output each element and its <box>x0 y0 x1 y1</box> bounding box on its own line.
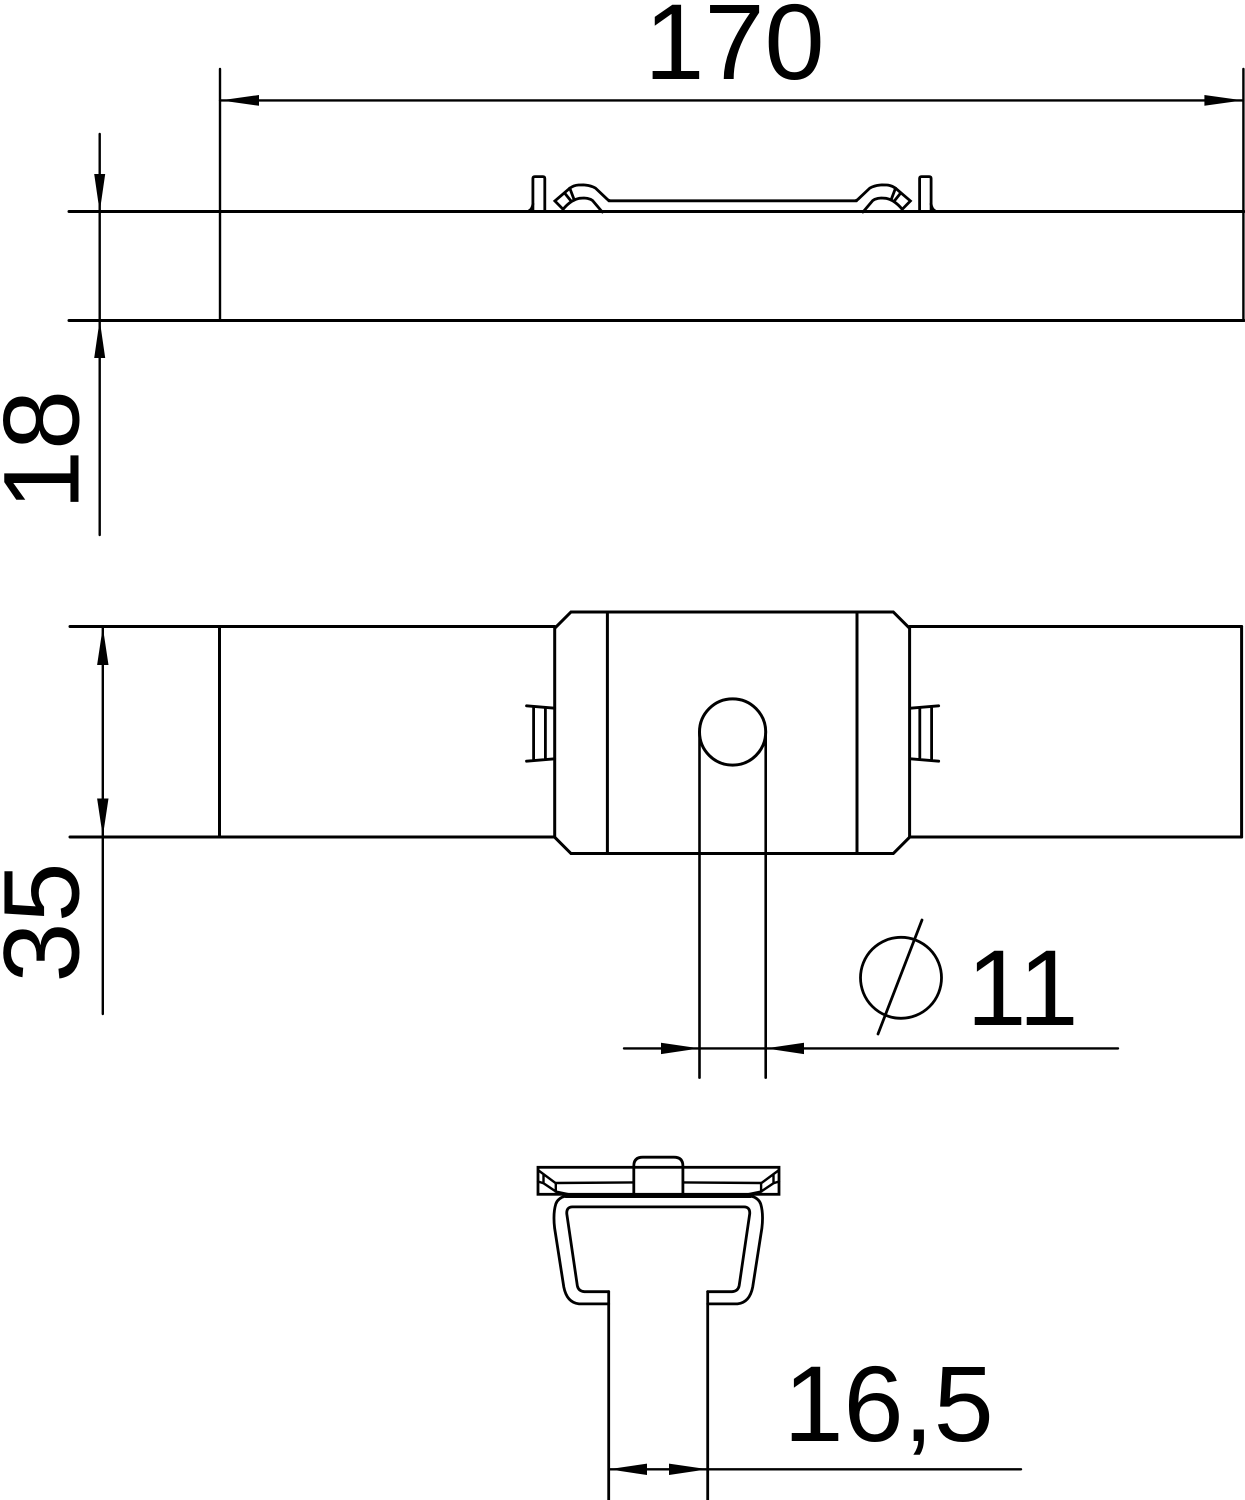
svg-text:11: 11 <box>966 927 1078 1048</box>
svg-text:35: 35 <box>0 862 102 982</box>
svg-text:18: 18 <box>0 390 102 510</box>
svg-text:170: 170 <box>644 0 824 102</box>
svg-text:16,5: 16,5 <box>783 1343 993 1464</box>
